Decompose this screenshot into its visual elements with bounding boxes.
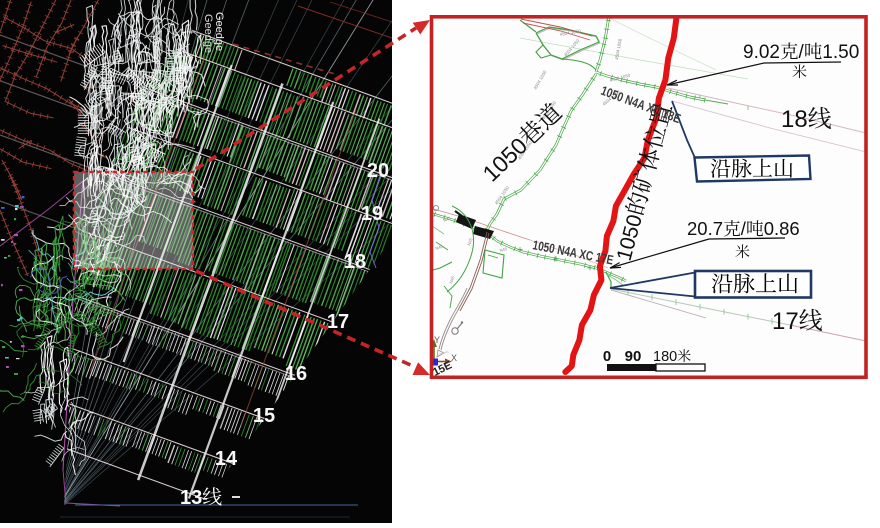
svg-text:13: 13 xyxy=(180,487,202,509)
svg-text:1.50: 1.50 xyxy=(822,42,859,63)
svg-text:19: 19 xyxy=(361,203,383,225)
svg-text:0: 0 xyxy=(603,348,611,365)
svg-text:Geedge: Geedge xyxy=(202,14,214,53)
svg-text:0.86: 0.86 xyxy=(764,218,800,239)
svg-text:15: 15 xyxy=(253,405,275,427)
svg-text:180: 180 xyxy=(653,349,677,365)
svg-text:20: 20 xyxy=(367,160,389,182)
svg-text:/: / xyxy=(799,42,805,63)
svg-text:18: 18 xyxy=(344,251,366,273)
svg-text:90: 90 xyxy=(625,348,642,365)
svg-text:9.02: 9.02 xyxy=(743,42,780,63)
svg-text:/: / xyxy=(741,218,747,239)
svg-text:14: 14 xyxy=(215,448,238,470)
svg-text:16: 16 xyxy=(285,363,307,385)
svg-text:18: 18 xyxy=(781,106,808,133)
svg-text:20.7: 20.7 xyxy=(687,218,723,239)
svg-text:17: 17 xyxy=(772,308,799,335)
svg-text:17: 17 xyxy=(327,311,349,333)
